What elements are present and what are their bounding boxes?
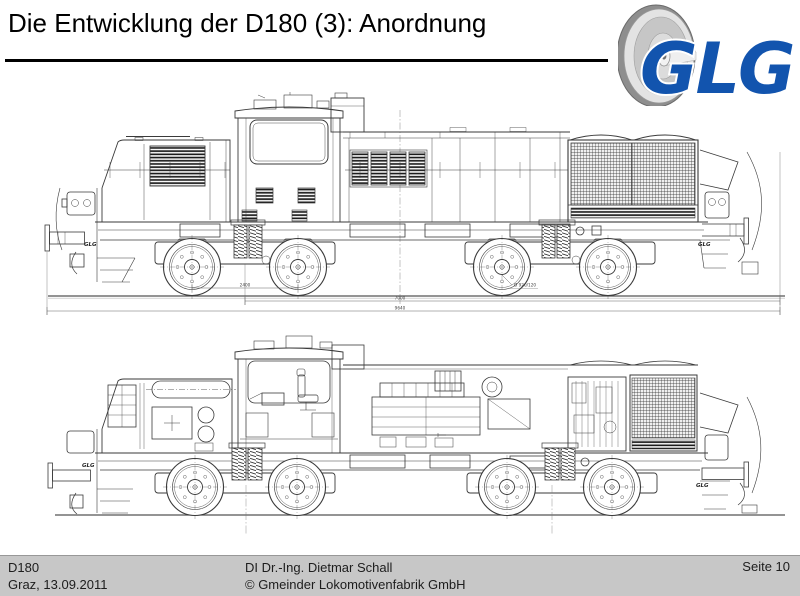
coil-spring [561,448,575,480]
footer-center: DI Dr.-Ing. Dietmar Schall © Gmeinder Lo… [245,559,466,593]
louver-door [390,152,406,185]
left-hood-interior [102,379,236,453]
left-steps [97,188,135,282]
footer-place-date: Graz, 13.09.2011 [8,576,108,593]
footer-bar: D180 Graz, 13.09.2011 DI Dr.-Ing. Dietma… [0,555,800,596]
loco-badge-left: GLG [84,242,97,248]
left-buffer [48,429,133,514]
footer-company: © Gmeinder Lokomotivenfabrik GmbH [245,576,466,593]
footer-page-number: Seite 10 [742,559,790,574]
wheel-logo-icon: GLG [618,2,800,106]
coil-spring [234,225,247,258]
exhaust-silencer [331,93,364,132]
presentation-slide: Die Entwicklung der D180 (3): Anordnung … [0,0,800,595]
dim-pivot-distance: 7000 [395,296,406,301]
fan-hump [570,135,632,140]
locomotive-exterior: GLG [45,92,785,315]
footer-author: DI Dr.-Ing. Dietmar Schall [245,559,466,576]
dim-bogie-axle: 2400 [240,283,251,288]
long-hood [343,128,570,223]
louver-door [409,152,425,185]
louver-door [371,152,387,185]
glg-logo: GLG [618,2,800,106]
right-buffer [702,224,744,236]
coil-spring [542,225,555,258]
coil-spring [249,225,262,258]
title-rule [5,59,608,62]
footer-project: D180 [8,559,108,576]
footer-left: D180 Graz, 13.09.2011 [8,559,108,593]
coil-spring [248,448,262,480]
locomotive-cutaway: GLG GLG [48,336,785,535]
radiator-grille [571,143,695,205]
coil-spring [557,225,570,258]
compressor [198,407,214,423]
left-buffer [45,188,95,274]
cab-interior [235,336,343,453]
driver-seat [297,369,318,410]
fan-hump [570,361,696,365]
right-end [700,393,761,513]
sand-funnel [700,150,738,190]
loco-badge-right: GLG [696,483,709,489]
right-lamp-box [705,192,729,218]
left-hood-grille [150,146,205,186]
turbocharger [482,377,502,397]
dim-wheel-diameter: Ø 920/120 [514,283,536,288]
cab [235,92,343,222]
loco-badge-right: GLG [698,242,711,248]
slide-title: Die Entwicklung der D180 (3): Anordnung [8,8,486,39]
underframe [95,222,708,240]
right-handrail [747,152,762,250]
drawing-bottom-cutaway: GLG GLG [40,335,790,540]
right-end [700,150,762,274]
loco-badge-left: GLG [82,463,95,469]
cab-window [250,120,328,164]
coil-spring [545,448,559,480]
cooling-section [568,375,697,451]
radiator-section [568,135,698,222]
fan-hump [634,135,696,140]
radiator-grille [632,378,695,438]
coil-spring [232,448,246,480]
engine-rocker-covers [380,383,464,397]
left-hood [102,137,230,223]
dim-overall-length: 9640 [395,306,406,311]
drawing-top-side-elevation: GLG [40,92,790,320]
